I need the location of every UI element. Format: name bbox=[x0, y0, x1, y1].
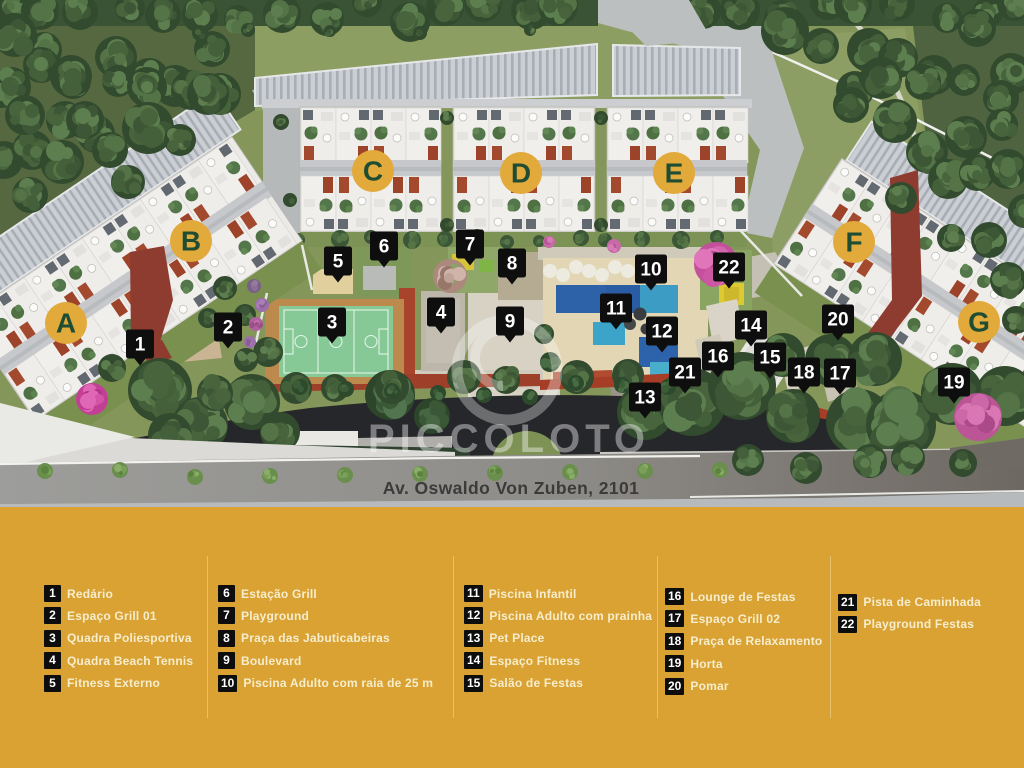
svg-text:7: 7 bbox=[465, 235, 476, 256]
svg-text:2: 2 bbox=[223, 318, 234, 339]
svg-text:5: 5 bbox=[333, 252, 344, 273]
svg-text:11: 11 bbox=[606, 299, 627, 320]
svg-text:18: 18 bbox=[793, 363, 814, 384]
svg-text:15: 15 bbox=[759, 348, 781, 369]
svg-text:4: 4 bbox=[436, 303, 447, 324]
svg-text:F: F bbox=[845, 227, 862, 258]
svg-text:D: D bbox=[511, 158, 531, 189]
svg-text:14: 14 bbox=[740, 316, 762, 337]
svg-text:A: A bbox=[56, 308, 76, 339]
svg-text:1: 1 bbox=[135, 335, 146, 356]
svg-text:B: B bbox=[181, 226, 201, 257]
svg-text:10: 10 bbox=[640, 260, 661, 281]
svg-text:9: 9 bbox=[505, 312, 516, 333]
svg-text:21: 21 bbox=[674, 363, 696, 384]
svg-text:3: 3 bbox=[327, 313, 338, 334]
svg-text:17: 17 bbox=[829, 364, 850, 385]
svg-text:16: 16 bbox=[707, 347, 728, 368]
svg-text:20: 20 bbox=[827, 310, 848, 331]
svg-text:12: 12 bbox=[651, 322, 672, 343]
svg-text:C: C bbox=[363, 156, 383, 187]
svg-text:22: 22 bbox=[718, 258, 739, 279]
svg-text:6: 6 bbox=[379, 237, 390, 258]
svg-text:8: 8 bbox=[507, 254, 518, 275]
svg-text:E: E bbox=[665, 158, 684, 189]
svg-text:G: G bbox=[968, 307, 990, 338]
svg-text:19: 19 bbox=[943, 373, 964, 394]
svg-text:PICCOLOTO: PICCOLOTO bbox=[368, 417, 650, 461]
svg-text:13: 13 bbox=[634, 388, 655, 409]
